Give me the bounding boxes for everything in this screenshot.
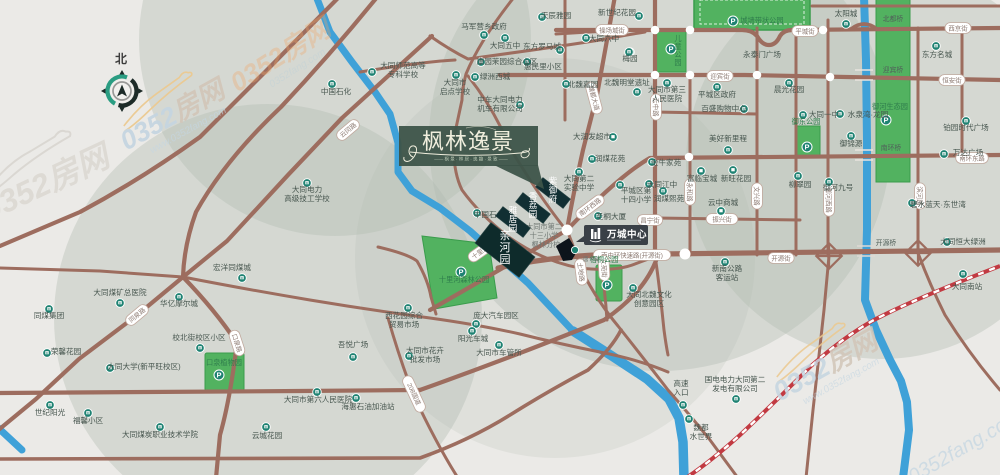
svg-text:西京街: 西京街 [948, 23, 968, 32]
svg-text:百盛购物中心: 百盛购物中心 [701, 103, 747, 113]
svg-text:御东公园: 御东公园 [792, 117, 821, 126]
svg-text:大同师范高等: 大同师范高等 [380, 60, 426, 70]
svg-text:平城街: 平城街 [795, 26, 815, 35]
svg-text:太阳城: 太阳城 [835, 8, 858, 18]
svg-text:国电电力大同第二: 国电电力大同第二 [705, 374, 766, 384]
svg-text:高级技工学校: 高级技工学校 [284, 193, 330, 203]
svg-text:专科学校: 专科学校 [388, 69, 419, 79]
svg-text:昌宁街: 昌宁街 [640, 215, 660, 224]
svg-text:云中商城: 云中商城 [708, 197, 739, 207]
svg-text:阳光车城: 阳光车城 [458, 333, 489, 343]
svg-text:十四小学: 十四小学 [621, 194, 652, 204]
svg-text:平城区第: 平城区第 [621, 185, 652, 195]
svg-text:华亿摩尔城: 华亿摩尔城 [160, 298, 198, 308]
svg-text:美好新里程: 美好新里程 [709, 133, 747, 143]
svg-text:恒安街: 恒安街 [942, 75, 962, 84]
svg-text:批发市场: 批发市场 [410, 354, 441, 364]
svg-text:康园茉园综合小区: 康园茉园综合小区 [477, 56, 538, 66]
svg-text:御锦源: 御锦源 [840, 138, 863, 148]
svg-text:南环桥: 南环桥 [881, 143, 902, 152]
svg-text:大同大学(新平旺校区): 大同大学(新平旺校区) [107, 361, 181, 371]
svg-text:文兴路: 文兴路 [753, 186, 762, 206]
svg-text:晨光花园: 晨光花园 [774, 84, 804, 94]
svg-text:福馨小区: 福馨小区 [73, 415, 104, 425]
svg-text:操场城街: 操场城街 [599, 25, 625, 34]
svg-text:儿童公园: 儿童公园 [674, 34, 681, 67]
svg-text:万城中心: 万城中心 [606, 229, 647, 241]
svg-text:亲河园: 亲河园 [500, 228, 511, 266]
svg-text:十里河森林公园: 十里河森林公园 [439, 275, 489, 284]
svg-text:东方罗马城: 东方罗马城 [523, 41, 561, 51]
svg-text:大同市第六人民医院: 大同市第六人民医院 [284, 394, 353, 404]
svg-text:唐卡街: 唐卡街 [583, 255, 600, 263]
svg-text:大同六中: 大同六中 [589, 33, 619, 43]
svg-text:中车大同电力: 中车大同电力 [477, 94, 523, 104]
svg-text:迎宾桥: 迎宾桥 [883, 65, 904, 74]
svg-text:实验中学: 实验中学 [564, 182, 595, 192]
svg-text:云城花园: 云城花园 [252, 430, 282, 440]
svg-text:大同第二: 大同第二 [564, 173, 595, 183]
svg-text:永和路: 永和路 [686, 182, 695, 202]
svg-text:魏都: 魏都 [693, 422, 709, 432]
svg-text:枫林分校: 枫林分校 [532, 240, 561, 249]
svg-text:金牛家苑: 金牛家苑 [651, 157, 682, 167]
svg-text:开源桥: 开源桥 [876, 238, 897, 247]
svg-text:发电有限公司: 发电有限公司 [712, 383, 758, 393]
svg-text:万达广场: 万达广场 [953, 147, 984, 157]
svg-text:东方名城: 东方名城 [922, 49, 953, 59]
svg-text:口泉植物园: 口泉植物园 [206, 358, 242, 367]
svg-text:平城区政府: 平城区政府 [698, 89, 736, 99]
svg-text:北都桥: 北都桥 [883, 14, 904, 23]
svg-text:梅园: 梅园 [622, 53, 637, 63]
svg-text:启点学校: 启点学校 [440, 86, 471, 96]
svg-text:大同市花卉: 大同市花卉 [406, 345, 444, 355]
svg-text:荣馨花园: 荣馨花园 [51, 346, 81, 356]
svg-text:新旺花园: 新旺花园 [721, 173, 751, 183]
svg-text:P: P [216, 371, 221, 380]
svg-text:大同北魏文化: 大同北魏文化 [626, 289, 672, 299]
svg-text:天辰雅园: 天辰雅园 [541, 10, 571, 20]
svg-text:御河生态园: 御河生态园 [872, 102, 908, 111]
svg-text:圣桐大厦: 圣桐大厦 [596, 211, 627, 221]
svg-text:西花园综合: 西花园综合 [385, 310, 423, 320]
svg-text:新世纪花园: 新世纪花园 [598, 7, 636, 17]
svg-text:润煤花苑: 润煤花苑 [595, 153, 626, 163]
svg-text:绿洲西城: 绿洲西城 [480, 72, 511, 81]
svg-text:P: P [604, 281, 609, 290]
svg-text:富临宝城: 富临宝城 [687, 173, 718, 183]
svg-text:新南公路: 新南公路 [712, 263, 743, 273]
svg-text:中国石化: 中国石化 [321, 86, 352, 96]
svg-text:大同市车管所: 大同市车管所 [476, 347, 522, 357]
svg-text:—— 枫 景 · 林 居 · 逸 趣 · 景 致 ——: —— 枫 景 · 林 居 · 逸 趣 · 景 致 —— [434, 156, 508, 163]
svg-text:振兴街: 振兴街 [712, 214, 732, 223]
svg-text:御河九号: 御河九号 [823, 182, 854, 192]
svg-text:入口: 入口 [673, 388, 688, 397]
svg-text:雅居园: 雅居园 [509, 205, 518, 233]
svg-text:大同市: 大同市 [444, 77, 467, 87]
svg-text:机车有限公司: 机车有限公司 [477, 103, 523, 113]
svg-text:庞大汽车园区: 庞大汽车园区 [473, 310, 519, 320]
svg-text:大同市第三: 大同市第三 [648, 84, 686, 94]
svg-text:吾悦广场: 吾悦广场 [338, 339, 369, 349]
svg-text:同煤集团: 同煤集团 [34, 310, 64, 320]
svg-text:北魏明堂遗址: 北魏明堂遗址 [604, 77, 650, 87]
svg-text:大同江中: 大同江中 [647, 179, 677, 189]
svg-text:枫林逸景: 枫林逸景 [422, 129, 514, 154]
svg-text:水世界: 水世界 [690, 431, 713, 441]
svg-text:北: 北 [115, 51, 127, 66]
svg-text:大同恒大绿洲: 大同恒大绿洲 [940, 236, 986, 246]
svg-text:大同电力: 大同电力 [292, 184, 322, 194]
svg-text:永泰门广场: 永泰门广场 [743, 49, 781, 59]
svg-text:大同市第二: 大同市第二 [526, 222, 562, 231]
svg-text:创意园区: 创意园区 [634, 298, 665, 308]
svg-text:宏洋同煤城: 宏洋同煤城 [213, 262, 251, 272]
svg-text:紫御府: 紫御府 [549, 176, 558, 204]
svg-text:大润发超市: 大润发超市 [573, 131, 611, 141]
svg-text:大同煤矿总医院: 大同煤矿总医院 [93, 287, 147, 297]
svg-text:P: P [730, 17, 735, 26]
svg-text:马军营乡政府: 马军营乡政府 [461, 21, 507, 31]
svg-text:大同煤炭职业技术学院: 大同煤炭职业技术学院 [122, 429, 198, 439]
svg-text:城墙带状公园: 城墙带状公园 [740, 16, 783, 25]
svg-text:人民医院: 人民医院 [652, 93, 683, 103]
svg-text:碧水蓝天·东世湾: 碧水蓝天·东世湾 [910, 199, 966, 209]
svg-text:北魏嘉园: 北魏嘉园 [568, 79, 598, 89]
svg-text:十三小学: 十三小学 [530, 231, 559, 240]
svg-text:P: P [804, 143, 809, 152]
svg-text:润煤熙苑: 润煤熙苑 [654, 193, 685, 203]
svg-text:世纪阳光: 世纪阳光 [35, 407, 66, 417]
svg-text:铂园时代广场: 铂园时代广场 [943, 122, 989, 132]
svg-text:大同南站: 大同南站 [952, 281, 983, 291]
svg-text:客运站: 客运站 [716, 272, 739, 282]
svg-text:大同五中: 大同五中 [490, 40, 520, 50]
svg-text:柳翠园: 柳翠园 [789, 179, 812, 189]
svg-text:高速: 高速 [673, 378, 689, 388]
svg-text:迎宾街: 迎宾街 [710, 71, 730, 80]
svg-text:香荔园: 香荔园 [529, 191, 538, 219]
svg-text:校北街校区小区: 校北街校区小区 [172, 332, 226, 342]
svg-text:贸易市场: 贸易市场 [389, 319, 420, 329]
svg-text:P: P [668, 45, 673, 54]
svg-text:开源街: 开源街 [771, 253, 791, 262]
